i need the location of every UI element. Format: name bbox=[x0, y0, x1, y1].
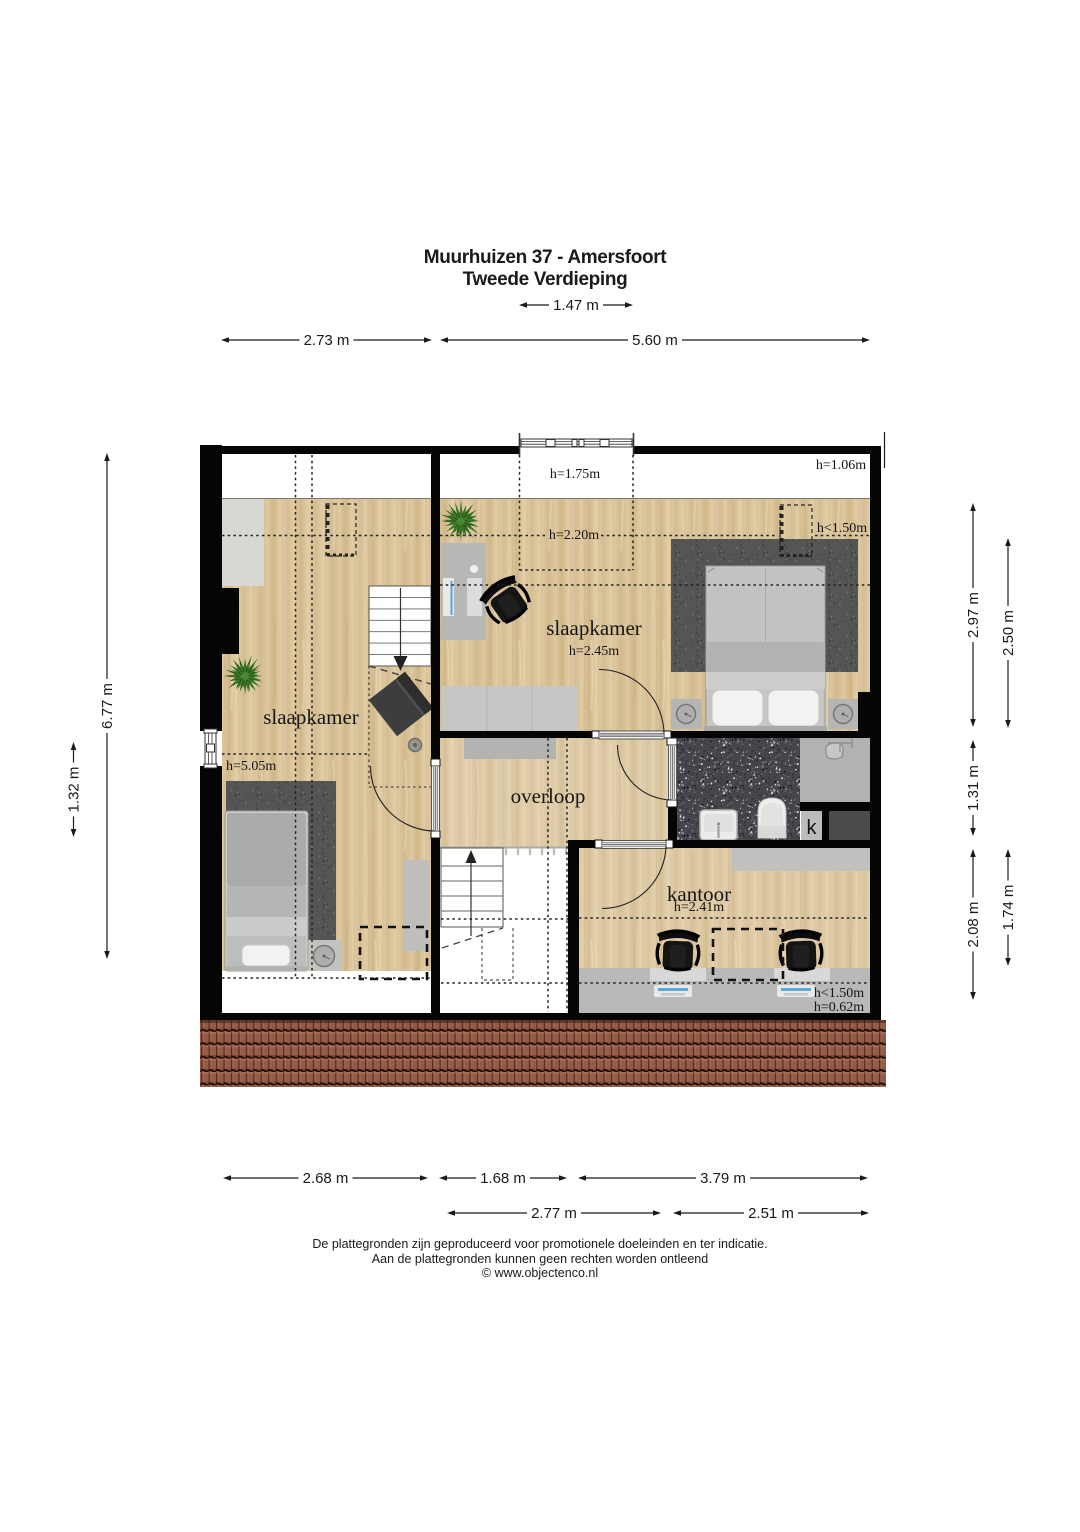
svg-text:2.50 m: 2.50 m bbox=[1000, 610, 1017, 656]
svg-text:h=2.45m: h=2.45m bbox=[569, 644, 619, 659]
svg-text:2.73 m: 2.73 m bbox=[304, 332, 350, 349]
svg-text:h=2.20m: h=2.20m bbox=[549, 528, 599, 543]
svg-text:5.60 m: 5.60 m bbox=[632, 332, 678, 349]
svg-text:k: k bbox=[807, 817, 818, 839]
svg-text:slaapkamer: slaapkamer bbox=[546, 616, 642, 640]
svg-text:slaapkamer: slaapkamer bbox=[263, 705, 359, 729]
svg-text:1.32 m: 1.32 m bbox=[66, 767, 83, 813]
svg-text:© www.objectenco.nl: © www.objectenco.nl bbox=[482, 1266, 598, 1280]
svg-text:Aan de plattegronden kunnen ge: Aan de plattegronden kunnen geen rechten… bbox=[372, 1252, 708, 1266]
svg-text:2.51 m: 2.51 m bbox=[748, 1205, 794, 1222]
svg-text:h=5.05m: h=5.05m bbox=[226, 759, 276, 774]
svg-text:De plattegronden zijn geproduc: De plattegronden zijn geproduceerd voor … bbox=[312, 1237, 767, 1251]
svg-text:2.77 m: 2.77 m bbox=[531, 1205, 577, 1222]
svg-text:h=0.62m: h=0.62m bbox=[814, 1000, 864, 1015]
svg-text:Tweede Verdieping: Tweede Verdieping bbox=[463, 269, 628, 290]
svg-text:h=2.41m: h=2.41m bbox=[674, 900, 724, 915]
svg-text:h<1.50m: h<1.50m bbox=[814, 986, 864, 1001]
svg-text:Muurhuizen 37 - Amersfoort: Muurhuizen 37 - Amersfoort bbox=[424, 247, 668, 268]
svg-text:1.31 m: 1.31 m bbox=[965, 765, 982, 811]
svg-text:h=1.06m: h=1.06m bbox=[816, 458, 866, 473]
svg-text:3.79 m: 3.79 m bbox=[700, 1170, 746, 1187]
svg-text:2.97 m: 2.97 m bbox=[965, 592, 982, 638]
svg-text:1.68 m: 1.68 m bbox=[480, 1170, 526, 1187]
svg-text:h<1.50m: h<1.50m bbox=[817, 521, 867, 536]
svg-text:h=1.75m: h=1.75m bbox=[550, 467, 600, 482]
svg-text:1.74 m: 1.74 m bbox=[1000, 885, 1017, 931]
svg-text:6.77 m: 6.77 m bbox=[99, 683, 116, 729]
svg-text:2.68 m: 2.68 m bbox=[303, 1170, 349, 1187]
svg-text:1.47 m: 1.47 m bbox=[553, 297, 599, 314]
svg-text:2.08 m: 2.08 m bbox=[965, 902, 982, 948]
